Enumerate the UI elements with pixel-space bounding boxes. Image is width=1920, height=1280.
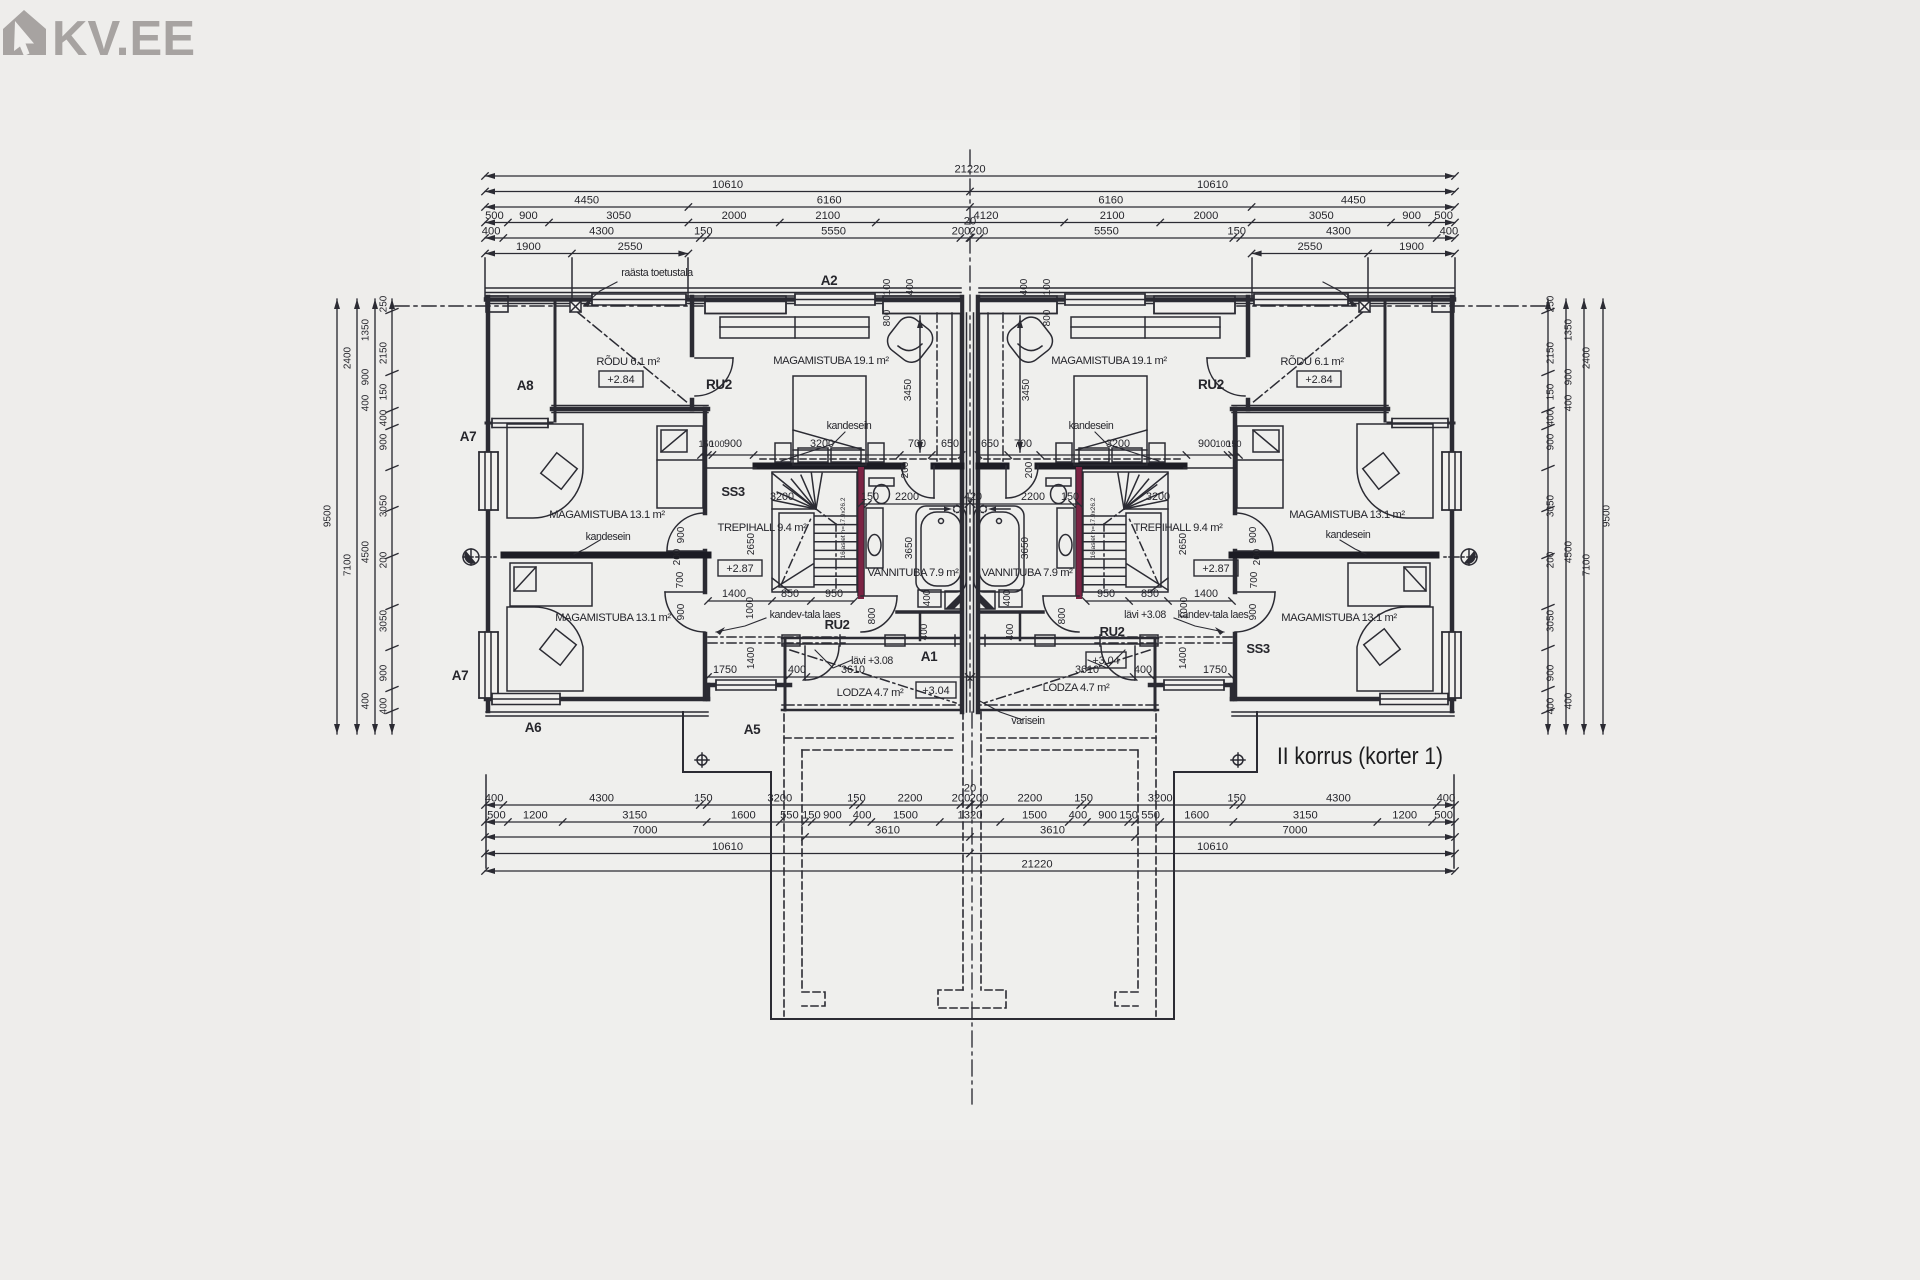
svg-text:LODZA 4.7 m²: LODZA 4.7 m² — [837, 687, 904, 699]
svg-text:3050: 3050 — [1546, 609, 1557, 632]
svg-text:150: 150 — [861, 491, 879, 503]
svg-text:400: 400 — [922, 589, 933, 606]
svg-text:3150: 3150 — [622, 810, 647, 822]
svg-text:kandesein: kandesein — [827, 420, 872, 432]
svg-text:150: 150 — [1119, 810, 1138, 822]
svg-text:100: 100 — [1042, 278, 1053, 295]
svg-text:3650: 3650 — [1020, 536, 1031, 559]
svg-text:900: 900 — [1098, 810, 1117, 822]
svg-text:150: 150 — [1061, 491, 1079, 503]
svg-text:700: 700 — [1014, 438, 1032, 450]
svg-text:200: 200 — [1546, 551, 1557, 568]
svg-text:900: 900 — [1248, 603, 1259, 620]
svg-text:lävi +3.08: lävi +3.08 — [1124, 609, 1166, 621]
svg-text:21220: 21220 — [1021, 859, 1052, 871]
svg-text:100: 100 — [882, 278, 893, 295]
svg-text:RÕDU 6.1 m²: RÕDU 6.1 m² — [596, 355, 660, 368]
svg-text:550: 550 — [1141, 810, 1160, 822]
svg-text:900: 900 — [1564, 368, 1575, 385]
svg-text:MAGAMISTUBA 19.1 m²: MAGAMISTUBA 19.1 m² — [1051, 355, 1167, 367]
svg-text:3050: 3050 — [379, 494, 390, 517]
svg-text:420: 420 — [964, 491, 982, 503]
svg-text:10610: 10610 — [712, 179, 743, 191]
svg-text:SS3: SS3 — [1246, 641, 1270, 656]
svg-text:A6: A6 — [525, 720, 542, 735]
svg-text:200: 200 — [1252, 548, 1263, 565]
svg-text:900: 900 — [519, 210, 538, 222]
svg-text:500: 500 — [1434, 210, 1453, 222]
svg-text:400: 400 — [485, 793, 504, 805]
svg-text:3610: 3610 — [1075, 664, 1099, 676]
svg-text:MAGAMISTUBA 13.1 m²: MAGAMISTUBA 13.1 m² — [1289, 509, 1405, 521]
svg-text:1900: 1900 — [1399, 241, 1424, 253]
svg-text:400: 400 — [1564, 394, 1575, 411]
svg-text:6160: 6160 — [1098, 195, 1123, 207]
svg-text:700: 700 — [675, 571, 686, 588]
svg-text:150: 150 — [1227, 793, 1246, 805]
svg-text:1500: 1500 — [1022, 810, 1047, 822]
svg-text:500: 500 — [1434, 810, 1453, 822]
svg-text:400: 400 — [1437, 793, 1456, 805]
svg-text:7000: 7000 — [633, 825, 658, 837]
svg-text:RÕDU 6.1 m²: RÕDU 6.1 m² — [1280, 355, 1344, 368]
svg-text:3050: 3050 — [606, 210, 631, 222]
svg-text:400: 400 — [361, 692, 372, 709]
svg-text:400: 400 — [1019, 278, 1030, 295]
svg-text:2000: 2000 — [1193, 210, 1218, 222]
svg-text:3200: 3200 — [1148, 793, 1173, 805]
svg-text:kandesein: kandesein — [586, 531, 631, 543]
svg-text:2550: 2550 — [618, 241, 643, 253]
svg-text:10610: 10610 — [712, 841, 743, 853]
svg-text:400: 400 — [1440, 226, 1459, 238]
svg-text:16 astet h=17.9x26.2: 16 astet h=17.9x26.2 — [840, 497, 847, 558]
svg-text:400: 400 — [1546, 409, 1557, 426]
svg-text:1600: 1600 — [1184, 810, 1209, 822]
svg-text:200: 200 — [672, 548, 683, 565]
svg-text:250: 250 — [1546, 295, 1557, 312]
svg-text:800: 800 — [867, 607, 878, 624]
svg-text:6160: 6160 — [817, 195, 842, 207]
svg-text:4300: 4300 — [589, 226, 614, 238]
svg-text:SS3: SS3 — [721, 484, 745, 499]
svg-text:2100: 2100 — [815, 210, 840, 222]
svg-text:A2: A2 — [821, 273, 837, 288]
svg-text:150: 150 — [694, 793, 713, 805]
svg-text:RU2: RU2 — [706, 377, 732, 392]
svg-text:150: 150 — [694, 226, 713, 238]
svg-text:21220: 21220 — [954, 164, 985, 176]
svg-text:700: 700 — [1249, 571, 1260, 588]
svg-text:4300: 4300 — [1326, 226, 1351, 238]
svg-text:kandesein: kandesein — [1326, 529, 1371, 541]
svg-text:500: 500 — [485, 210, 504, 222]
svg-text:VANNITUBA 7.9 m²: VANNITUBA 7.9 m² — [982, 567, 1074, 579]
svg-text:1200: 1200 — [523, 810, 548, 822]
svg-text:1400: 1400 — [722, 588, 746, 600]
svg-text:4120: 4120 — [974, 210, 999, 222]
svg-text:400: 400 — [1069, 810, 1088, 822]
svg-text:1000: 1000 — [745, 596, 756, 619]
svg-text:950: 950 — [1097, 588, 1115, 600]
svg-text:A7: A7 — [452, 668, 468, 683]
svg-text:400: 400 — [482, 226, 501, 238]
svg-text:200: 200 — [1024, 461, 1035, 478]
svg-text:kandev-tala laes: kandev-tala laes — [770, 609, 841, 621]
svg-text:400: 400 — [853, 810, 872, 822]
svg-text:900: 900 — [1546, 664, 1557, 681]
svg-text:400: 400 — [1546, 697, 1557, 714]
svg-text:10610: 10610 — [1197, 179, 1228, 191]
svg-text:1000: 1000 — [1179, 596, 1190, 619]
svg-text:900: 900 — [379, 664, 390, 681]
svg-text:3610: 3610 — [841, 664, 865, 676]
svg-text:10610: 10610 — [1197, 841, 1228, 853]
svg-text:5550: 5550 — [1094, 226, 1119, 238]
svg-text:2650: 2650 — [1178, 532, 1189, 555]
svg-text:500: 500 — [487, 810, 506, 822]
svg-text:MAGAMISTUBA 13.1 m²: MAGAMISTUBA 13.1 m² — [555, 612, 671, 624]
svg-text:1400: 1400 — [746, 646, 757, 669]
svg-text:2150: 2150 — [379, 341, 390, 364]
svg-text:1750: 1750 — [713, 664, 737, 676]
svg-text:400: 400 — [1134, 664, 1152, 676]
svg-text:1600: 1600 — [731, 810, 756, 822]
svg-text:650: 650 — [941, 438, 959, 450]
svg-text:raästa toetustala: raästa toetustala — [621, 267, 693, 279]
svg-text:2100: 2100 — [1100, 210, 1125, 222]
svg-text:900: 900 — [823, 810, 842, 822]
svg-text:1400: 1400 — [1178, 646, 1189, 669]
svg-text:850: 850 — [781, 588, 799, 600]
svg-text:400: 400 — [1564, 692, 1575, 709]
svg-text:+2.84: +2.84 — [1305, 374, 1332, 386]
svg-text:1320: 1320 — [958, 810, 983, 822]
svg-text:3200: 3200 — [770, 491, 794, 503]
svg-text:VANNITUBA 7.9 m²: VANNITUBA 7.9 m² — [868, 567, 960, 579]
svg-text:400: 400 — [1005, 623, 1016, 640]
svg-text:1500: 1500 — [893, 810, 918, 822]
svg-text:3200: 3200 — [1106, 438, 1130, 450]
svg-text:200: 200 — [900, 461, 911, 478]
svg-text:900: 900 — [379, 433, 390, 450]
svg-text:2400: 2400 — [343, 346, 354, 369]
svg-text:900: 900 — [676, 526, 687, 543]
svg-text:2200: 2200 — [1021, 491, 1045, 503]
svg-text:2400: 2400 — [1582, 346, 1593, 369]
svg-text:700: 700 — [908, 438, 926, 450]
svg-text:200: 200 — [970, 226, 989, 238]
svg-text:900: 900 — [1248, 526, 1259, 543]
svg-text:950: 950 — [825, 588, 843, 600]
svg-text:3450: 3450 — [1021, 378, 1032, 401]
svg-text:150: 150 — [1227, 226, 1246, 238]
svg-text:II korrus (korter 1): II korrus (korter 1) — [1277, 743, 1443, 770]
svg-text:MAGAMISTUBA 13.1 m²: MAGAMISTUBA 13.1 m² — [1281, 612, 1397, 624]
svg-text:TREPIHALL 9.4 m²: TREPIHALL 9.4 m² — [718, 522, 808, 534]
svg-text:KV.EE: KV.EE — [52, 12, 194, 66]
svg-text:16 astet h=17.9x26.2: 16 astet h=17.9x26.2 — [1090, 497, 1097, 558]
svg-text:A8: A8 — [517, 378, 534, 393]
svg-text:A7: A7 — [460, 429, 476, 444]
svg-text:400: 400 — [379, 697, 390, 714]
svg-text:3450: 3450 — [903, 378, 914, 401]
svg-text:3650: 3650 — [904, 536, 915, 559]
svg-text:3610: 3610 — [875, 825, 900, 837]
svg-text:100: 100 — [1215, 439, 1230, 449]
svg-text:2200: 2200 — [895, 491, 919, 503]
svg-text:7000: 7000 — [1283, 825, 1308, 837]
svg-text:A1: A1 — [921, 649, 938, 664]
svg-text:250: 250 — [379, 295, 390, 312]
svg-text:2150: 2150 — [1546, 341, 1557, 364]
svg-text:3610: 3610 — [1040, 825, 1065, 837]
svg-text:LODZA 4.7 m²: LODZA 4.7 m² — [1043, 682, 1110, 694]
svg-text:+2.87: +2.87 — [726, 563, 753, 575]
svg-text:2000: 2000 — [722, 210, 747, 222]
svg-text:4450: 4450 — [1341, 195, 1366, 207]
svg-text:varisein: varisein — [1011, 715, 1045, 727]
svg-text:9500: 9500 — [1602, 504, 1613, 527]
svg-text:900: 900 — [1546, 433, 1557, 450]
svg-text:4450: 4450 — [574, 195, 599, 207]
svg-text:3150: 3150 — [1293, 810, 1318, 822]
svg-text:100: 100 — [709, 439, 724, 449]
svg-text:1900: 1900 — [516, 241, 541, 253]
svg-text:800: 800 — [882, 309, 893, 326]
svg-text:2650: 2650 — [746, 532, 757, 555]
svg-text:+2.87: +2.87 — [1202, 563, 1229, 575]
svg-text:5550: 5550 — [821, 226, 846, 238]
svg-text:3050: 3050 — [1309, 210, 1334, 222]
svg-text:1350: 1350 — [1564, 318, 1575, 341]
svg-text:+2.84: +2.84 — [607, 374, 634, 386]
svg-text:1750: 1750 — [1203, 664, 1227, 676]
svg-text:7100: 7100 — [1582, 553, 1593, 576]
svg-text:+3.04: +3.04 — [922, 685, 949, 697]
svg-text:400: 400 — [905, 278, 916, 295]
svg-text:150: 150 — [802, 810, 821, 822]
svg-text:RU2: RU2 — [1100, 624, 1125, 639]
svg-text:150: 150 — [1074, 793, 1093, 805]
svg-text:RU2: RU2 — [1198, 377, 1224, 392]
svg-text:900: 900 — [676, 603, 687, 620]
svg-text:3200: 3200 — [810, 438, 834, 450]
svg-text:3200: 3200 — [1146, 491, 1170, 503]
svg-text:200: 200 — [970, 793, 989, 805]
svg-text:4300: 4300 — [589, 793, 614, 805]
svg-text:kandesein: kandesein — [1069, 420, 1114, 432]
svg-text:400: 400 — [919, 623, 930, 640]
svg-text:3050: 3050 — [379, 609, 390, 632]
svg-text:2550: 2550 — [1297, 241, 1322, 253]
svg-text:MAGAMISTUBA 19.1 m²: MAGAMISTUBA 19.1 m² — [773, 355, 889, 367]
svg-text:MAGAMISTUBA 13.1 m²: MAGAMISTUBA 13.1 m² — [549, 509, 665, 521]
svg-text:3200: 3200 — [767, 793, 792, 805]
svg-text:800: 800 — [1057, 607, 1068, 624]
svg-text:900: 900 — [1198, 438, 1216, 450]
svg-text:200: 200 — [379, 551, 390, 568]
svg-text:4300: 4300 — [1326, 793, 1351, 805]
svg-text:400: 400 — [379, 409, 390, 426]
svg-text:150: 150 — [1546, 383, 1557, 400]
svg-text:1400: 1400 — [1194, 588, 1218, 600]
svg-text:400: 400 — [1002, 589, 1013, 606]
svg-text:900: 900 — [1402, 210, 1421, 222]
svg-text:400: 400 — [361, 394, 372, 411]
svg-text:1200: 1200 — [1392, 810, 1417, 822]
svg-text:7100: 7100 — [343, 553, 354, 576]
svg-text:TREPIHALL 9.4 m²: TREPIHALL 9.4 m² — [1134, 522, 1224, 534]
svg-text:1350: 1350 — [361, 318, 372, 341]
svg-text:3050: 3050 — [1546, 494, 1557, 517]
svg-text:9500: 9500 — [323, 504, 334, 527]
svg-text:800: 800 — [1042, 309, 1053, 326]
svg-text:400: 400 — [788, 664, 806, 676]
svg-text:2200: 2200 — [1017, 793, 1042, 805]
svg-text:900: 900 — [724, 438, 742, 450]
svg-text:4500: 4500 — [1564, 540, 1575, 563]
svg-text:150: 150 — [379, 383, 390, 400]
svg-text:150: 150 — [847, 793, 866, 805]
svg-text:A5: A5 — [744, 722, 761, 737]
svg-text:550: 550 — [780, 810, 799, 822]
svg-text:2200: 2200 — [898, 793, 923, 805]
svg-text:900: 900 — [361, 368, 372, 385]
svg-text:650: 650 — [981, 438, 999, 450]
svg-text:4500: 4500 — [361, 540, 372, 563]
svg-text:850: 850 — [1141, 588, 1159, 600]
